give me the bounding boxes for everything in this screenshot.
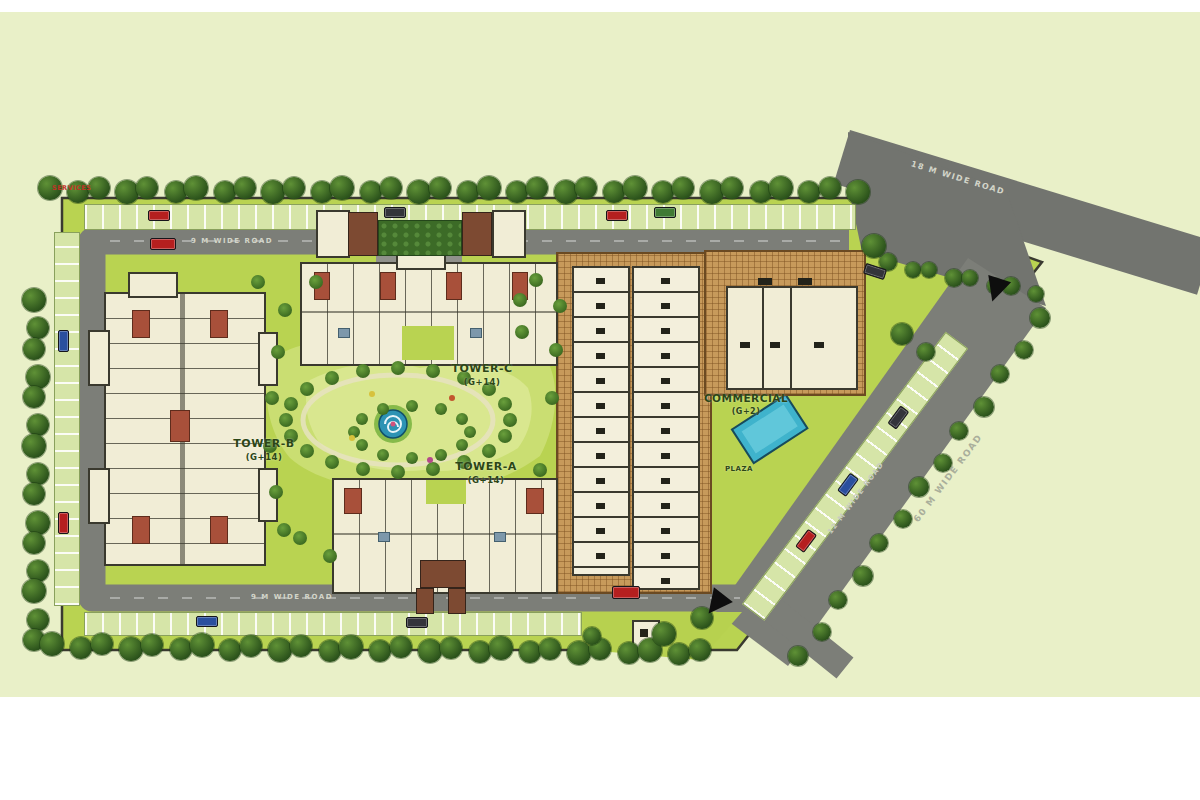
tree-icon xyxy=(991,365,1009,383)
tree-icon xyxy=(477,176,501,200)
tree-icon xyxy=(554,180,578,204)
shrub-icon xyxy=(464,426,476,438)
site-plan-canvas: TOWER-B (G+14) TOWER-C (G+14) TOWER-A (G… xyxy=(0,0,1200,800)
tree-icon xyxy=(652,181,674,203)
shrub-icon xyxy=(271,345,285,359)
tower-b-annex xyxy=(128,272,178,298)
shrub-icon xyxy=(513,293,527,307)
tree-icon xyxy=(623,176,647,200)
car xyxy=(612,586,640,599)
car xyxy=(148,210,170,221)
tree-icon xyxy=(519,641,541,663)
tree-icon xyxy=(369,640,391,662)
south-gate-left xyxy=(416,588,434,614)
tree-icon xyxy=(23,386,45,408)
parking-strip-left xyxy=(54,232,80,606)
tree-icon xyxy=(575,177,597,199)
shrub-icon xyxy=(279,413,293,427)
tree-icon xyxy=(846,180,870,204)
shrub-icon xyxy=(549,343,563,357)
tree-icon xyxy=(469,641,491,663)
tower-b-building xyxy=(104,292,266,566)
car xyxy=(654,207,676,218)
road-top-label: 9 M WIDE ROAD xyxy=(191,237,273,245)
shrub-icon xyxy=(482,444,496,458)
tree-icon xyxy=(974,397,994,417)
tower-a-building xyxy=(332,478,558,594)
car xyxy=(150,238,176,250)
shrub-icon xyxy=(300,444,314,458)
tree-icon xyxy=(184,176,208,200)
entrance-hedge xyxy=(378,220,462,256)
tower-b-wing xyxy=(258,332,278,386)
tree-icon xyxy=(70,637,92,659)
tree-icon xyxy=(40,632,64,656)
tree-icon xyxy=(539,638,561,660)
plaza-label: PLAZA xyxy=(725,465,753,473)
shrub-icon xyxy=(251,275,265,289)
shrub-icon xyxy=(406,452,418,464)
shrub-icon xyxy=(406,400,418,412)
tree-icon xyxy=(26,511,50,535)
tower-b-wing xyxy=(88,330,110,386)
tower-a-label: TOWER-A xyxy=(455,460,517,473)
tree-icon xyxy=(950,422,968,440)
tree-icon xyxy=(813,623,831,641)
shrub-icon xyxy=(553,299,567,313)
tree-icon xyxy=(115,180,139,204)
tree-icon xyxy=(1030,308,1050,328)
shrub-icon xyxy=(435,449,447,461)
tree-icon xyxy=(214,181,236,203)
shrub-icon xyxy=(498,429,512,443)
shrub-icon xyxy=(426,462,440,476)
tree-icon xyxy=(870,534,888,552)
tree-icon xyxy=(22,288,46,312)
tower-b-label: TOWER-B xyxy=(233,437,294,450)
entrance-gate-right xyxy=(462,212,492,256)
tree-icon xyxy=(429,177,451,199)
flower-icon xyxy=(369,391,375,397)
flower-icon xyxy=(449,395,455,401)
car xyxy=(384,207,406,218)
shrub-icon xyxy=(533,463,547,477)
road-bottom-label: 9 M WIDE ROAD xyxy=(251,593,333,601)
tree-icon xyxy=(319,640,341,662)
entrance-gate-left xyxy=(348,212,378,256)
car xyxy=(606,210,628,221)
parking-strip-bottom xyxy=(84,612,582,636)
south-gate-right xyxy=(448,588,466,614)
tree-icon xyxy=(457,181,479,203)
tower-b-floors: (G+14) xyxy=(246,452,283,462)
shrub-icon xyxy=(293,531,307,545)
tree-icon xyxy=(26,365,50,389)
tree-icon xyxy=(583,627,601,645)
tree-icon xyxy=(360,181,382,203)
car xyxy=(196,616,218,627)
tree-icon xyxy=(440,637,462,659)
tree-icon xyxy=(190,633,214,657)
tree-icon xyxy=(489,636,513,660)
shrub-icon xyxy=(391,361,405,375)
entrance-pad-left xyxy=(316,210,350,258)
tree-icon xyxy=(380,177,402,199)
tree-icon xyxy=(668,643,690,665)
shrub-icon xyxy=(278,303,292,317)
shrub-icon xyxy=(269,485,283,499)
shrub-icon xyxy=(529,273,543,287)
entrance-pad-right xyxy=(492,210,526,258)
flower-icon xyxy=(427,457,433,463)
shrub-icon xyxy=(426,364,440,378)
tree-icon xyxy=(819,177,841,199)
tree-icon xyxy=(862,234,886,258)
tree-icon xyxy=(390,636,412,658)
tower-b-wing xyxy=(88,468,110,524)
car xyxy=(406,617,428,628)
service-units-row-b xyxy=(632,266,700,590)
services-label: SERVICES xyxy=(52,184,91,192)
tree-icon xyxy=(141,634,163,656)
tower-c-floors: (G+14) xyxy=(464,377,501,387)
shrub-icon xyxy=(356,439,368,451)
shrub-icon xyxy=(545,391,559,405)
shrub-icon xyxy=(323,549,337,563)
tree-icon xyxy=(909,477,929,497)
shrub-icon xyxy=(503,413,517,427)
tree-icon xyxy=(1015,341,1033,359)
shrub-icon xyxy=(498,397,512,411)
shrub-icon xyxy=(356,413,368,425)
car xyxy=(58,512,69,534)
tree-icon xyxy=(945,269,963,287)
tree-icon xyxy=(23,532,45,554)
shrub-icon xyxy=(265,391,279,405)
commercial-label: COMMERCIAL xyxy=(704,392,788,404)
tree-icon xyxy=(23,338,45,360)
tree-icon xyxy=(829,591,847,609)
tree-icon xyxy=(894,510,912,528)
shrub-icon xyxy=(515,325,529,339)
service-units-row-a xyxy=(572,266,630,576)
tower-c-label: TOWER-C xyxy=(451,362,512,375)
shrub-icon xyxy=(325,371,339,385)
flower-icon xyxy=(349,435,355,441)
tower-a-floors: (G+14) xyxy=(468,475,505,485)
tree-icon xyxy=(905,262,921,278)
tower-c-building xyxy=(300,262,558,366)
commercial-building xyxy=(726,286,858,390)
tree-icon xyxy=(721,177,743,199)
tree-icon xyxy=(700,180,724,204)
tree-icon xyxy=(283,177,305,199)
shrub-icon xyxy=(391,465,405,479)
tree-icon xyxy=(750,181,772,203)
shrub-icon xyxy=(309,275,323,289)
tree-icon xyxy=(219,639,241,661)
tree-icon xyxy=(170,638,192,660)
tree-icon xyxy=(652,622,676,646)
tree-icon xyxy=(689,639,711,661)
tree-icon xyxy=(506,181,528,203)
shrub-icon xyxy=(356,364,370,378)
tree-icon xyxy=(27,609,49,631)
tree-icon xyxy=(769,176,793,200)
tree-icon xyxy=(788,646,808,666)
shrub-icon xyxy=(377,449,389,461)
tree-icon xyxy=(119,637,143,661)
tree-icon xyxy=(917,343,935,361)
tree-icon xyxy=(1028,286,1044,302)
tree-icon xyxy=(22,434,46,458)
tree-icon xyxy=(27,463,49,485)
commercial-floors: (G+2) xyxy=(732,407,761,416)
tree-icon xyxy=(853,566,873,586)
shrub-icon xyxy=(277,523,291,537)
car xyxy=(58,330,69,352)
tree-icon xyxy=(339,635,363,659)
tree-icon xyxy=(891,323,913,345)
tree-icon xyxy=(234,177,256,199)
